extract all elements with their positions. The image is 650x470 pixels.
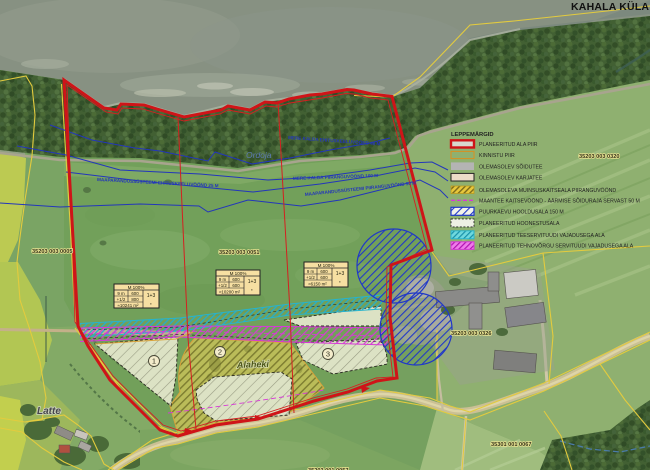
svg-text:PLANEERITUD ALA PIIR: PLANEERITUD ALA PIIR [479, 142, 538, 148]
svg-text:PLANEERITUD TEESERVITUUDI VAJA: PLANEERITUD TEESERVITUUDI VAJADUSEGA ALA [479, 233, 605, 239]
svg-text:9 m: 9 m [117, 291, 125, 296]
svg-text:M 100%: M 100% [230, 271, 247, 276]
svg-text:35203 003 0005: 35203 003 0005 [32, 249, 72, 255]
svg-text:Ordoja: Ordoja [246, 150, 272, 160]
svg-text:600: 600 [320, 275, 328, 280]
svg-text:+1/2: +1/2 [306, 275, 315, 280]
svg-text:1+3: 1+3 [336, 271, 345, 277]
svg-text:M 100%: M 100% [128, 285, 145, 290]
svg-text:≈10200 m²: ≈10200 m² [219, 290, 240, 295]
svg-text:600: 600 [232, 277, 240, 282]
svg-text:≈6150 m²: ≈6150 m² [308, 282, 327, 287]
svg-text:35203 003 0320: 35203 003 0320 [579, 154, 619, 160]
svg-text:1: 1 [152, 357, 156, 366]
svg-text:PLANEERITUD TEHNOVÕRGU SERVITU: PLANEERITUD TEHNOVÕRGU SERVITUUDI VAJADU… [479, 243, 634, 250]
svg-text:PUURKAEVU HOOLDUSALA 150 M: PUURKAEVU HOOLDUSALA 150 M [479, 209, 564, 215]
svg-text:+1/2: +1/2 [117, 297, 126, 302]
svg-text:35301 001 0067: 35301 001 0067 [491, 442, 531, 448]
svg-text:+1/2: +1/2 [218, 283, 227, 288]
svg-text:1+3: 1+3 [248, 279, 257, 285]
svg-text:KINNISTU PIIR: KINNISTU PIIR [479, 153, 515, 159]
svg-text:600: 600 [232, 283, 240, 288]
svg-text:800: 800 [131, 297, 139, 302]
svg-text:LEPPEMÄRGID: LEPPEMÄRGID [451, 131, 494, 138]
svg-text:35203 003 0051: 35203 003 0051 [219, 250, 259, 256]
svg-text:35203 003 0326: 35203 003 0326 [451, 331, 491, 337]
svg-text:≈10241 m²: ≈10241 m² [118, 303, 139, 308]
svg-text:9 m: 9 m [219, 277, 227, 282]
svg-text:3: 3 [326, 350, 330, 359]
svg-text:MAANTEE KAITSEVÖÖND - ÄÄRMISE: MAANTEE KAITSEVÖÖND - ÄÄRMISE SÕIDURAJA … [479, 197, 640, 204]
svg-text:M 100%: M 100% [318, 263, 335, 268]
svg-text:2: 2 [218, 348, 222, 357]
svg-text:PLANEERITUD HOONESTUSALA: PLANEERITUD HOONESTUSALA [479, 221, 560, 227]
svg-text:Latte: Latte [37, 406, 61, 417]
svg-text:OLEMASOLEV KARJATEE: OLEMASOLEV KARJATEE [479, 175, 543, 181]
svg-text:Alaheki: Alaheki [236, 359, 270, 370]
svg-text:600: 600 [320, 269, 328, 274]
svg-text:9 m: 9 m [307, 269, 315, 274]
svg-text:OLEMASOLEV SÕIDUTEE: OLEMASOLEV SÕIDUTEE [479, 163, 543, 170]
svg-text:600: 600 [131, 291, 139, 296]
svg-text:OLEMASOLEVA MUINSUSKAITSEALA P: OLEMASOLEVA MUINSUSKAITSEALA PIIRANGUVÖÖ… [479, 187, 616, 194]
svg-text:KAHALA KÜLA, ALA: KAHALA KÜLA, ALA [571, 0, 650, 13]
svg-text:1+3: 1+3 [147, 293, 156, 299]
